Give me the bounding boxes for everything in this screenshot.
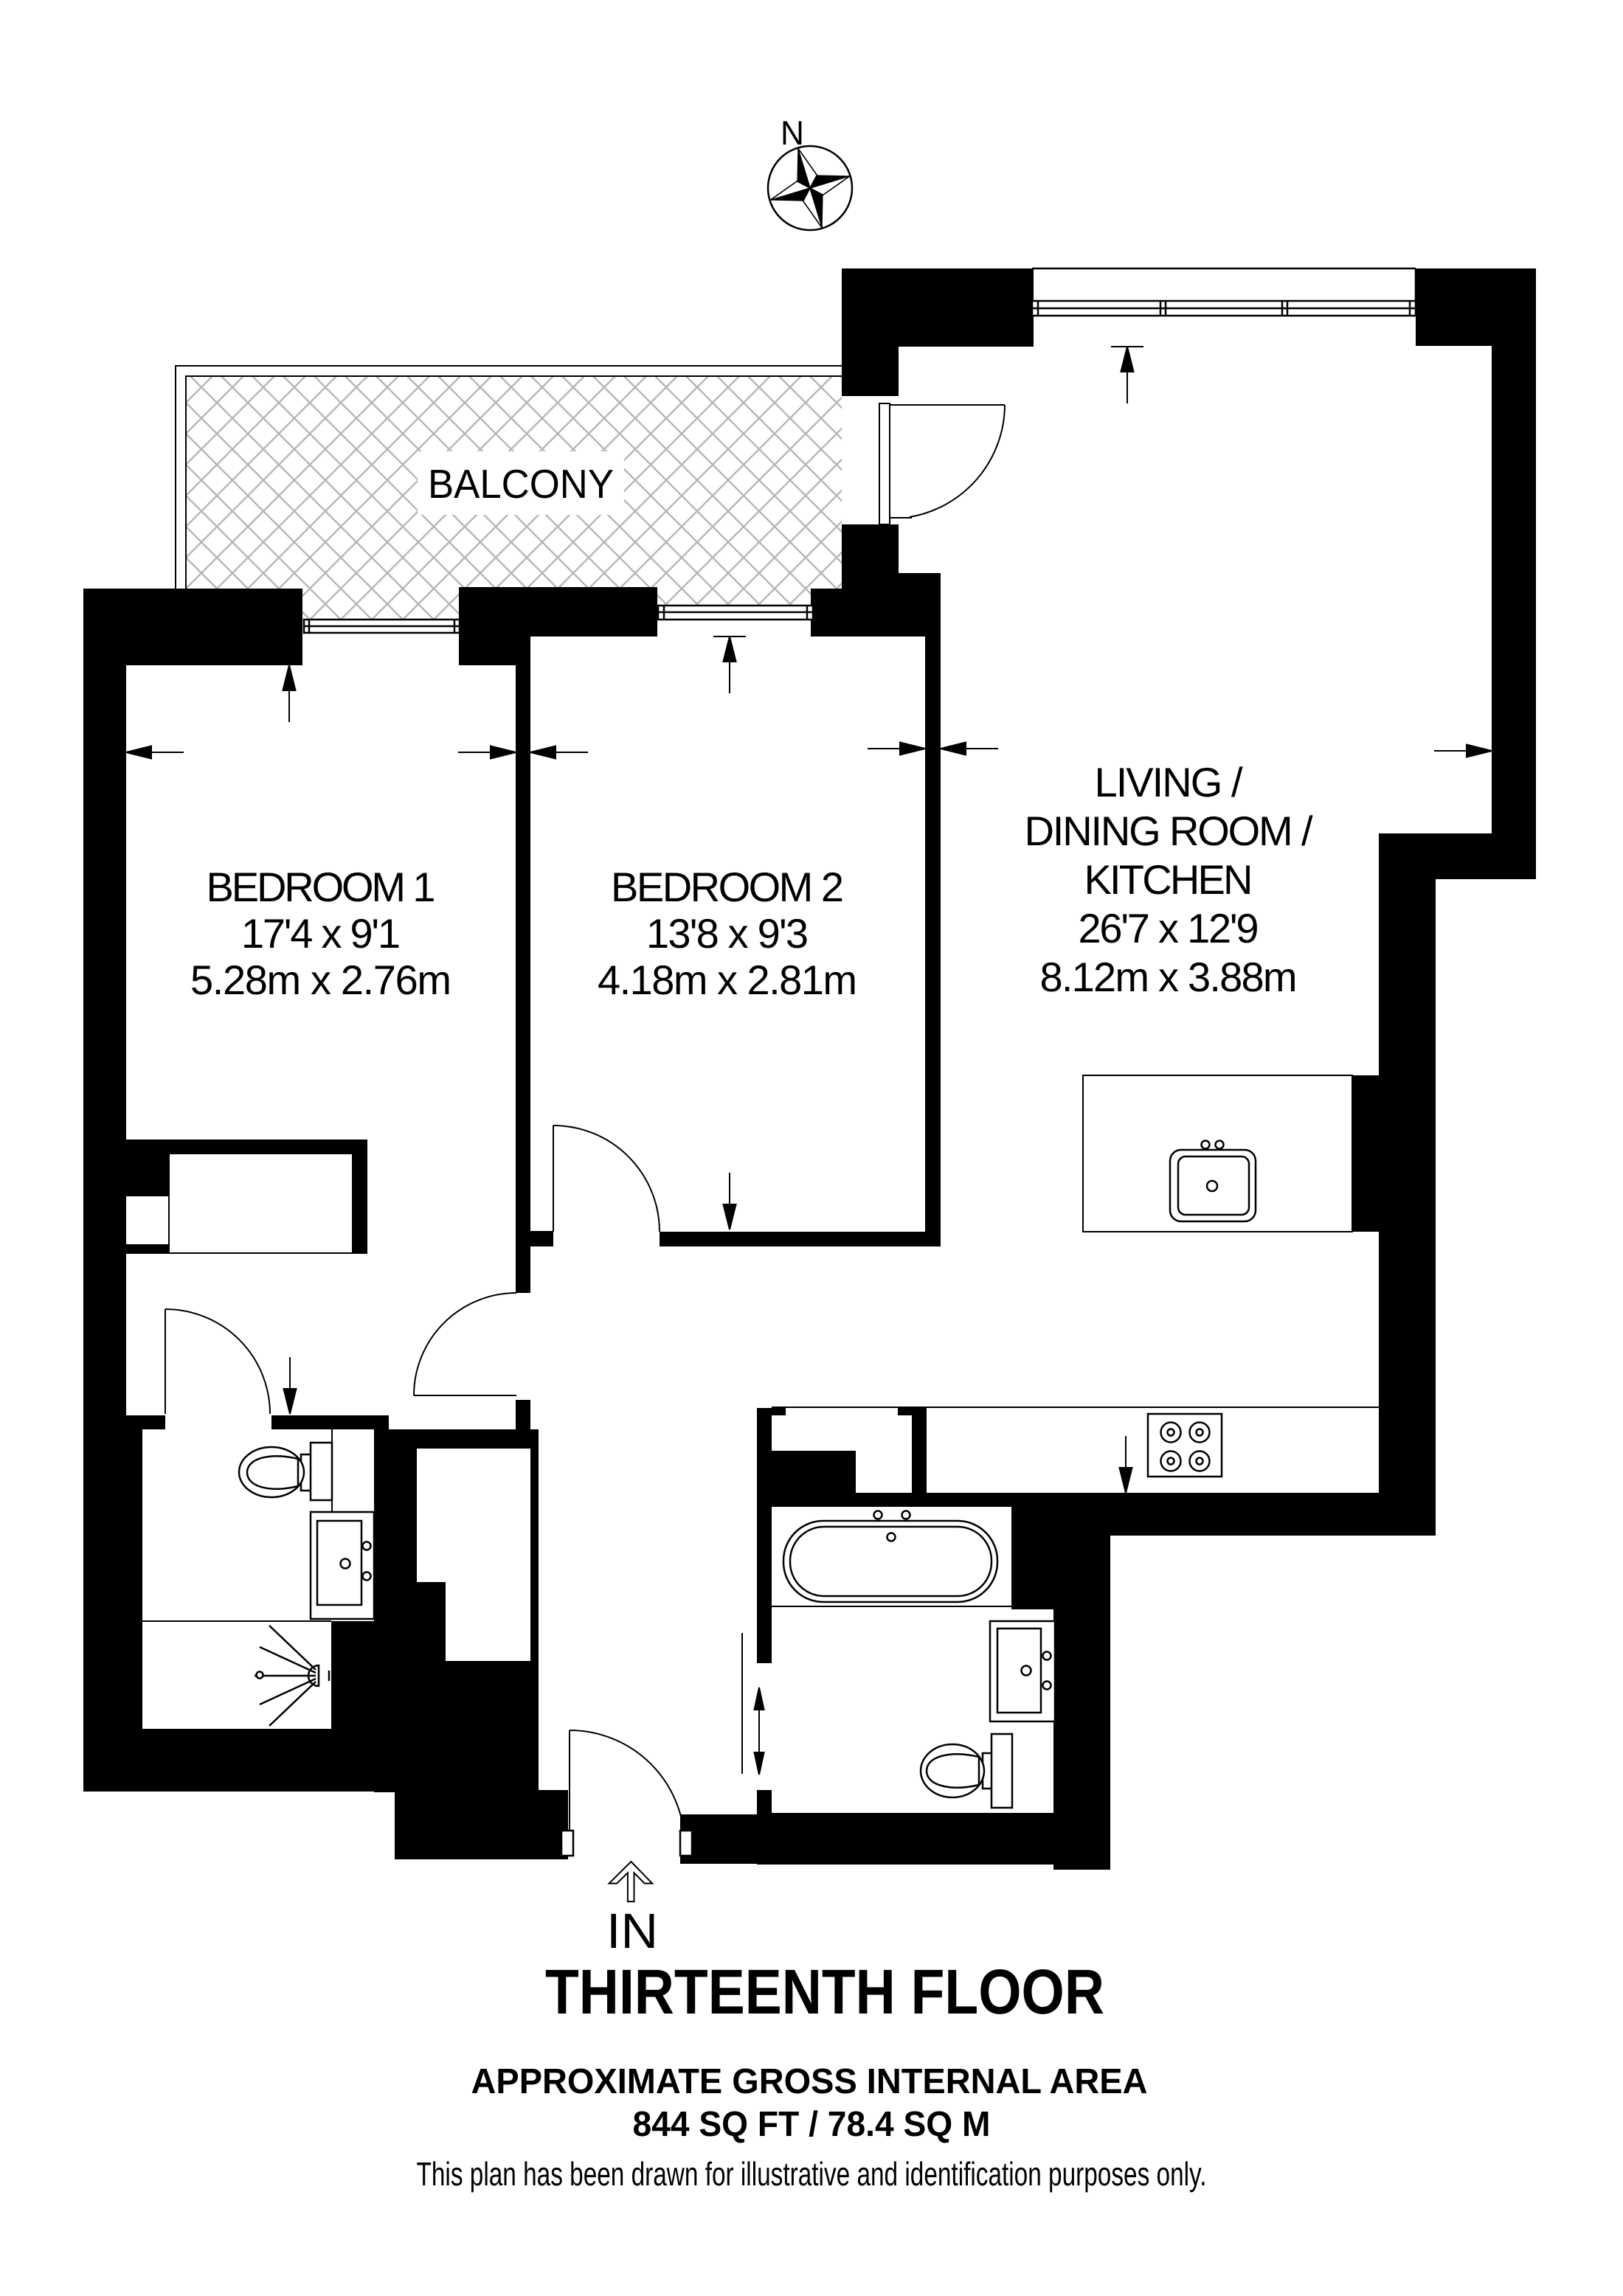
svg-text:BALCONY: BALCONY: [428, 461, 614, 507]
svg-text:LIVING /: LIVING /: [1095, 759, 1243, 805]
svg-text:THIRTEENTH FLOOR: THIRTEENTH FLOOR: [545, 1957, 1104, 2028]
svg-text:DINING ROOM /: DINING ROOM /: [1025, 808, 1313, 854]
svg-text:5.28m x 2.76m: 5.28m x 2.76m: [190, 957, 451, 1003]
svg-text:BEDROOM 2: BEDROOM 2: [611, 864, 844, 910]
svg-text:This plan has been drawn for i: This plan has been drawn for illustrativ…: [417, 2155, 1207, 2193]
svg-text:APPROXIMATE GROSS INTERNAL ARE: APPROXIMATE GROSS INTERNAL AREA: [471, 2062, 1148, 2101]
svg-text:17'4 x 9'1: 17'4 x 9'1: [241, 910, 401, 957]
svg-text:13'8 x 9'3: 13'8 x 9'3: [646, 910, 809, 957]
svg-text:N: N: [781, 114, 804, 152]
svg-text:KITCHEN: KITCHEN: [1084, 856, 1253, 903]
svg-text:26'7 x 12'9: 26'7 x 12'9: [1079, 905, 1259, 951]
svg-text:844 SQ FT / 78.4 SQ M: 844 SQ FT / 78.4 SQ M: [633, 2105, 991, 2144]
svg-text:BEDROOM 1: BEDROOM 1: [207, 864, 436, 910]
svg-text:IN: IN: [606, 1904, 658, 1959]
svg-text:8.12m x 3.88m: 8.12m x 3.88m: [1040, 954, 1298, 1000]
svg-text:4.18m x 2.81m: 4.18m x 2.81m: [598, 957, 857, 1003]
